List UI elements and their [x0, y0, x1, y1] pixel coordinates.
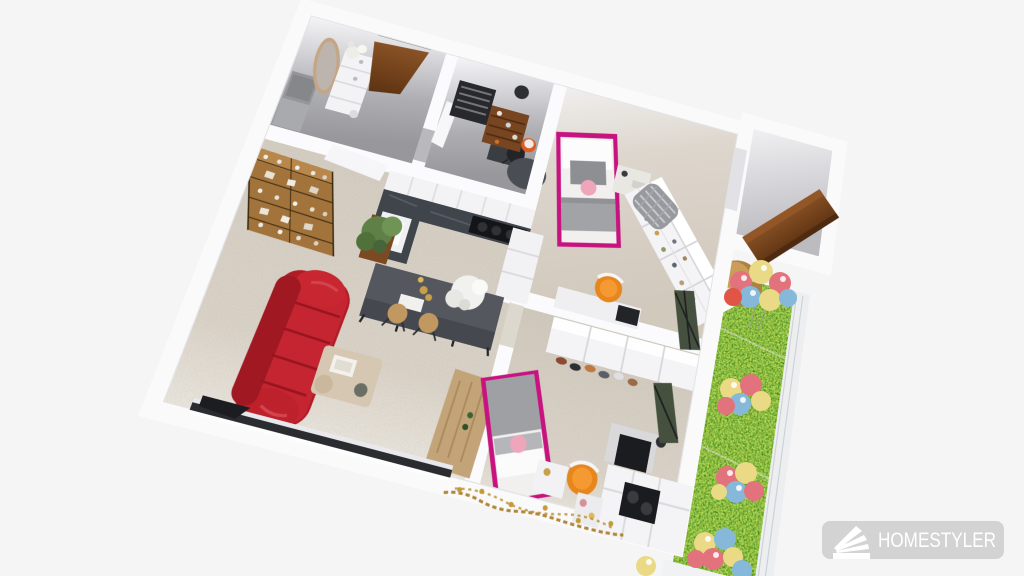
svg-text:HOMESTYLER: HOMESTYLER — [878, 529, 996, 552]
